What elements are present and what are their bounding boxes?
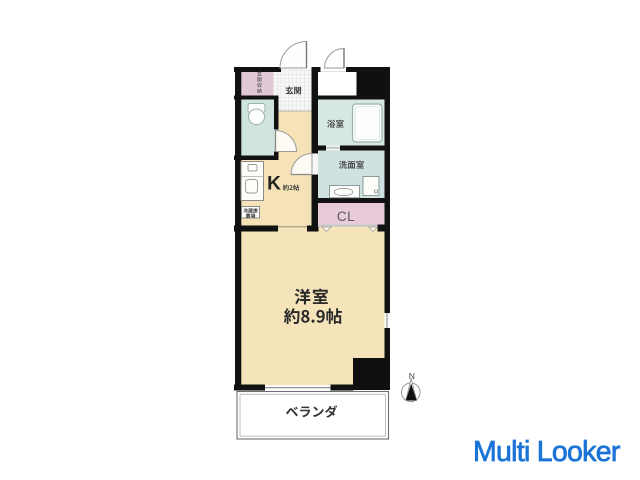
svg-text:CL: CL [337, 209, 355, 224]
svg-text:Multi Looker: Multi Looker [473, 436, 621, 468]
svg-text:K: K [267, 174, 281, 195]
